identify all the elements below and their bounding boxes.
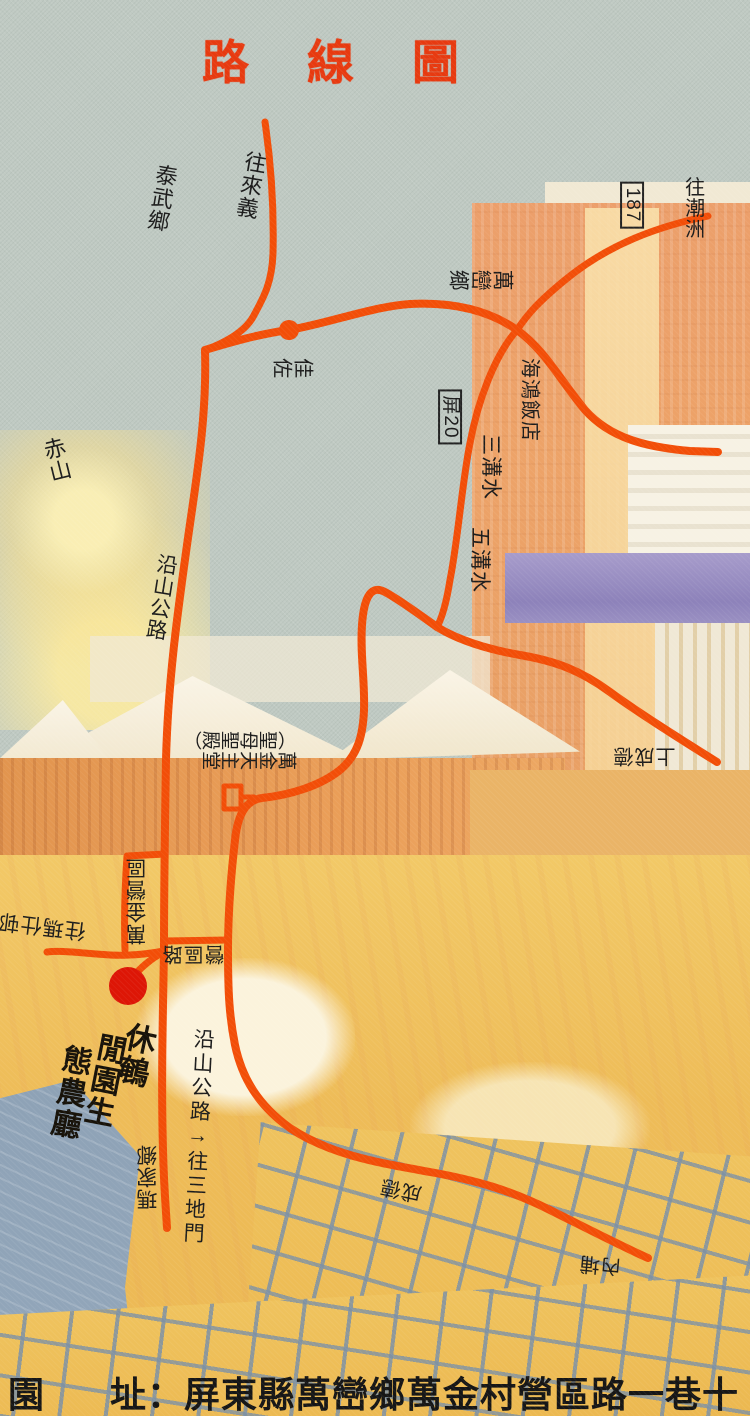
church-subtitle: （聖母聖殿）	[183, 728, 297, 748]
destination-marker	[109, 967, 147, 1005]
label-wanjin-church: 萬金天主堂 （聖母聖殿）	[183, 728, 297, 768]
label-haihong-hotel: 海鴻飯店	[518, 358, 539, 442]
road-to-mashi	[47, 951, 164, 955]
address-body: 址：屏東縣萬巒鄉萬金村營區路一巷十號	[110, 1366, 748, 1416]
label-wugou-water: 五溝水	[468, 527, 490, 593]
label-majia-township: 瑪家鄉	[138, 1144, 160, 1210]
road-to-shang-chengde	[437, 627, 717, 762]
label-wang-chaozhou: 往潮洲	[681, 177, 702, 240]
road-yingqu	[165, 940, 228, 941]
address-line: 園 址：屏東縣萬巒鄉萬金村營區路一巷十號	[8, 1366, 748, 1416]
label-neipu: 內埔	[578, 1252, 622, 1277]
address-prefix: 園	[8, 1366, 44, 1416]
label-jiazuo: 佳佐	[272, 354, 314, 375]
route-map: 路線圖 往來義 泰武鄉 往潮洲 187 萬巒鄉 佳佐 海鴻飯店 屏20 三溝水 …	[0, 0, 750, 1416]
jiazuo-junction-dot	[279, 320, 299, 340]
label-sangou-water: 三溝水	[479, 434, 501, 500]
church-name: 萬金天主堂	[183, 748, 297, 768]
label-wanjin-camp: 萬金營區	[127, 857, 149, 945]
label-wanluan-township: 萬巒鄉	[448, 267, 514, 289]
road-through-wanjin	[228, 590, 648, 1258]
church-building-outline	[224, 786, 241, 809]
label-yingqu-road: 營區路	[162, 942, 225, 963]
label-route-187-box: 187	[620, 182, 644, 229]
label-shang-chengde: 上成德	[613, 744, 676, 765]
label-ping20-box: 屏20	[438, 389, 462, 444]
map-title: 路線圖	[202, 24, 517, 93]
